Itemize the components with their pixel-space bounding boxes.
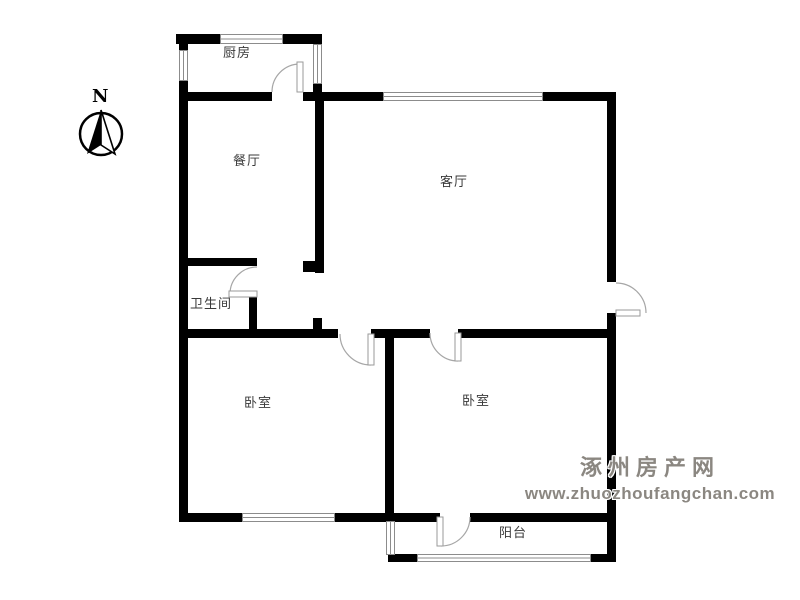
wall-segment: [388, 554, 417, 562]
wall-segment: [591, 554, 616, 562]
wall-segment: [607, 313, 616, 562]
wall-segment: [249, 294, 257, 334]
wall-segment: [188, 258, 257, 266]
kitchen-window-right: [314, 44, 322, 84]
kitchen-door: [272, 62, 303, 92]
room-label-balcony: 阳台: [499, 526, 527, 539]
room-label-kitchen: 厨房: [223, 46, 251, 59]
north-compass-icon: [80, 110, 122, 155]
watermark: 涿州房产网 www.zhuozhoufangchan.com: [510, 455, 790, 504]
bedroom-left-window: [242, 514, 335, 522]
wall-segment: [385, 338, 394, 513]
wall-segment: [179, 34, 188, 522]
watermark-site-url: www.zhuozhoufangchan.com: [510, 484, 790, 504]
wall-segment: [188, 329, 338, 338]
room-label-bathroom: 卫生间: [190, 297, 232, 310]
wall-segment: [315, 101, 324, 273]
wall-segment: [179, 92, 272, 101]
wall-segment: [458, 329, 616, 338]
floorplan-canvas: N 厨房 餐厅 客厅 卫生间 卧室 卧室 阳台 涿州房产网 www.zhuozh…: [0, 0, 800, 600]
compass-north-label: N: [92, 88, 108, 106]
living-room-window: [383, 93, 543, 101]
balcony-window-bottom: [417, 555, 591, 562]
balcony-window-left: [387, 521, 395, 555]
kitchen-window-top: [220, 35, 283, 44]
room-label-dining: 餐厅: [233, 154, 261, 167]
bedroom-left-door: [340, 334, 374, 365]
bathroom-door: [229, 267, 257, 297]
wall-segment: [371, 329, 430, 338]
wall-segment: [303, 261, 315, 272]
entry-door: [616, 283, 646, 316]
room-label-bedroom-left: 卧室: [244, 396, 272, 409]
kitchen-window-left: [180, 50, 188, 81]
floorplan-drawing: [0, 0, 800, 600]
room-label-living: 客厅: [440, 175, 468, 188]
wall-segment: [607, 92, 616, 282]
bedroom-right-door: [430, 333, 461, 361]
watermark-site-name: 涿州房产网: [510, 455, 790, 480]
wall-segment: [470, 513, 616, 522]
balcony-door: [437, 517, 470, 546]
room-label-bedroom-right: 卧室: [462, 394, 490, 407]
